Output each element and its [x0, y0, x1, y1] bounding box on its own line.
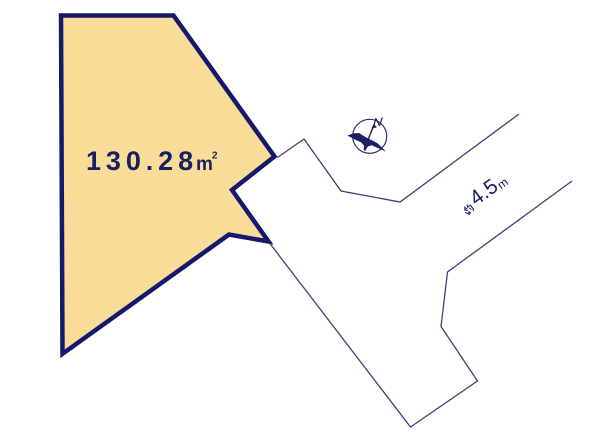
svg-text:130.28: 130.28 — [86, 146, 198, 176]
svg-text:m: m — [196, 154, 213, 175]
svg-text:2: 2 — [212, 151, 218, 162]
